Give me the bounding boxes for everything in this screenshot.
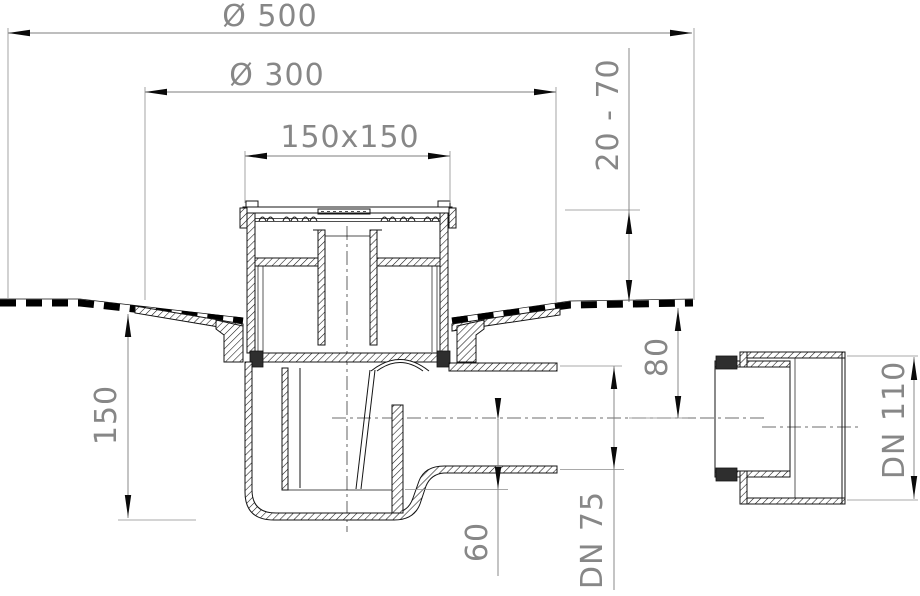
dim-label-20-70: 20 - 70 xyxy=(591,58,626,171)
dim-label-dn110: DN 110 xyxy=(877,361,912,479)
dim-outlet-axis-drop: 80 xyxy=(629,308,688,418)
dim-grate-size: 150x150 xyxy=(245,120,450,203)
dim-label-d300: Ø 300 xyxy=(229,58,324,93)
dim-adjust-range: 20 - 70 xyxy=(565,48,640,302)
dim-body-height: 150 xyxy=(89,314,196,520)
dim-flange-diameter: Ø 300 xyxy=(145,58,556,302)
drain-body xyxy=(245,351,557,520)
floor-drain-diagram: Ø 500 Ø 300 150x150 20 - 70 80 xyxy=(0,0,920,596)
dim-label-dn75: DN 75 xyxy=(575,491,610,589)
grate-frame xyxy=(240,201,456,228)
dim-outlet-pipe: DN 75 xyxy=(560,366,624,590)
technical-drawing-canvas: Ø 500 Ø 300 150x150 20 - 70 80 xyxy=(0,0,920,596)
adjustable-riser xyxy=(247,213,448,353)
centerlines xyxy=(332,226,858,532)
dn110-adapter xyxy=(715,352,845,504)
dim-label-80: 80 xyxy=(640,337,675,377)
dim-label-d500: Ø 500 xyxy=(222,0,317,34)
dim-adapter-pipe: DN 110 xyxy=(847,356,918,500)
dim-label-60: 60 xyxy=(460,522,495,562)
dim-label-150: 150 xyxy=(89,385,124,445)
dim-label-150x150: 150x150 xyxy=(280,120,419,155)
